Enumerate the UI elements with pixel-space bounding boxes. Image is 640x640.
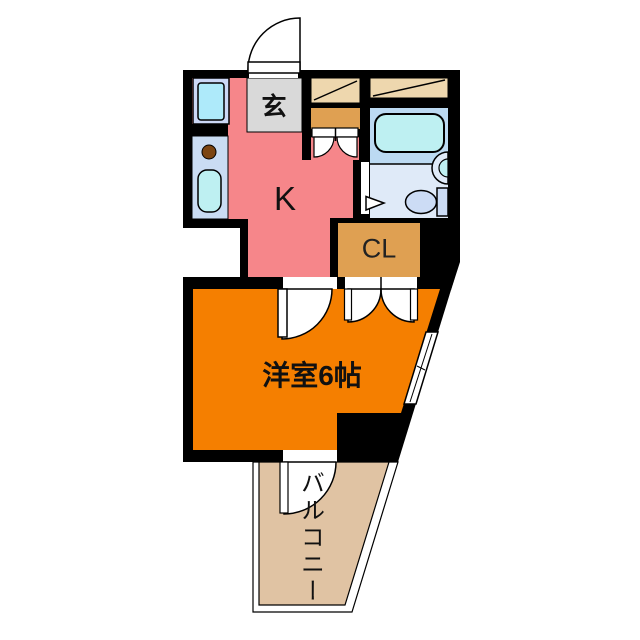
entry-door-leaf	[248, 62, 300, 73]
kitchen-sink-icon	[198, 170, 221, 212]
floorplan-canvas: 玄 K CL 洋室6帖 バルコニー	[0, 0, 640, 640]
floorplan-drawing	[0, 0, 640, 640]
room-door-leaf	[278, 289, 287, 337]
shoe-cabinet	[311, 108, 360, 129]
closet-door-left-leaf	[345, 289, 352, 320]
bathtub-icon	[375, 114, 444, 152]
toilet-tank-icon	[437, 188, 448, 216]
genkan-floor	[247, 78, 302, 132]
room-door-opening	[283, 277, 337, 289]
balcony-door-leaf	[280, 462, 288, 513]
washer-pan-inner	[198, 83, 224, 120]
closet-floor	[338, 223, 420, 277]
wall-below-washer	[190, 124, 228, 136]
balcony-door-opening	[283, 450, 337, 462]
toilet-icon	[406, 191, 437, 214]
stove-burner-icon	[202, 145, 216, 159]
closet-door-right-leaf	[411, 289, 418, 320]
